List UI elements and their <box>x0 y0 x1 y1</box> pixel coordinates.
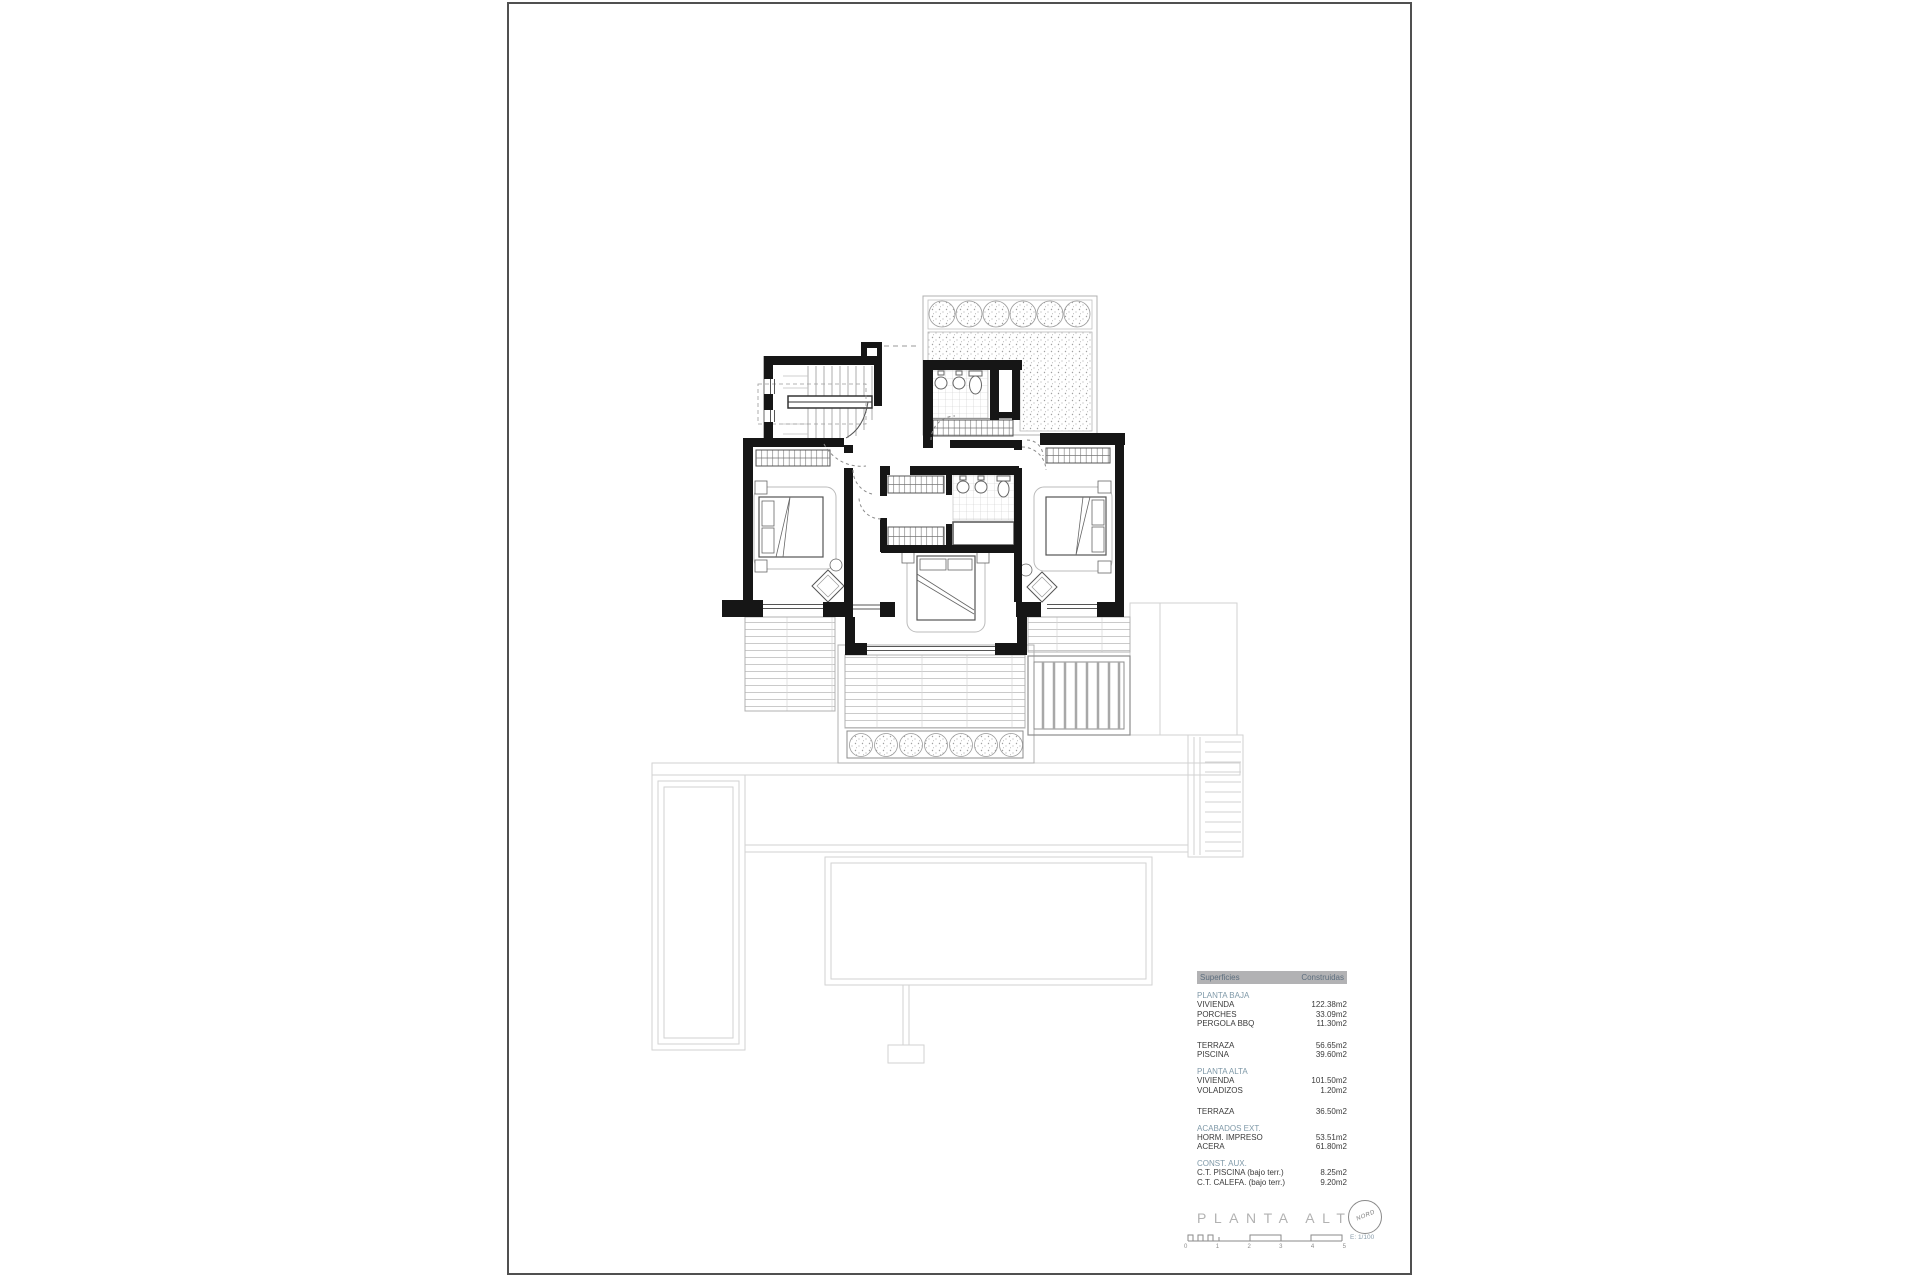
sink-tap <box>956 371 962 375</box>
sink <box>935 377 947 389</box>
table-group: PLANTA ALTAVIVIENDA101.50m2VOLADIZOS1.20… <box>1197 1067 1347 1095</box>
table-group: PLANTA BAJAVIVIENDA122.38m2PORCHES33.09m… <box>1197 991 1347 1029</box>
area-label: TERRAZA <box>1197 1107 1234 1117</box>
pillow <box>762 528 774 553</box>
areas-table-header: Superficies Construidas <box>1197 971 1347 984</box>
drawing-canvas: Superficies Construidas PLANTA BAJAVIVIE… <box>0 0 1920 1280</box>
table-group: TERRAZA56.65m2PISCINA39.60m2 <box>1197 1041 1347 1060</box>
area-label: VIVIENDA <box>1197 1076 1234 1086</box>
terraces <box>745 617 1130 763</box>
nightstand <box>1098 481 1111 493</box>
nightstand <box>755 481 767 494</box>
toilet <box>998 481 1009 497</box>
pillow <box>762 501 774 526</box>
table-group: ACABADOS EXT.HORM. IMPRESO53.51m2ACERA61… <box>1197 1124 1347 1152</box>
armchair <box>1027 572 1057 602</box>
sink <box>975 481 987 493</box>
north-arrow: NORD <box>1348 1200 1382 1234</box>
area-value: 53.51m2 <box>1316 1133 1347 1143</box>
header-col-superficies: Superficies <box>1200 973 1240 982</box>
scale-tick-label: 3 <box>1279 1244 1282 1250</box>
side-table <box>830 559 842 571</box>
area-label: C.T. PISCINA (bajo terr.) <box>1197 1168 1284 1178</box>
nightstand <box>977 552 989 563</box>
sink-tap <box>960 476 966 480</box>
table-group: TERRAZA36.50m2 <box>1197 1107 1347 1117</box>
group-heading: ACABADOS EXT. <box>1197 1124 1347 1133</box>
pillow <box>1092 527 1104 552</box>
exterior-stair <box>1188 735 1243 857</box>
area-value: 101.50m2 <box>1311 1076 1347 1086</box>
area-value: 56.65m2 <box>1316 1041 1347 1051</box>
area-value: 39.60m2 <box>1316 1050 1347 1060</box>
group-heading: PLANTA BAJA <box>1197 991 1347 1000</box>
table-group: CONST. AUX.C.T. PISCINA (bajo terr.)8.25… <box>1197 1159 1347 1187</box>
scale-ticks: 012345 <box>1184 1244 1346 1250</box>
scale-label: E: 1/100 <box>1350 1234 1374 1241</box>
header-col-construidas: Construidas <box>1301 973 1344 982</box>
scale-bar <box>1188 1235 1342 1241</box>
area-row: HORM. IMPRESO53.51m2 <box>1197 1133 1347 1143</box>
area-row: TERRAZA56.65m2 <box>1197 1041 1347 1051</box>
bedroom-right <box>1020 448 1112 602</box>
area-value: 33.09m2 <box>1316 1010 1347 1020</box>
area-value: 8.25m2 <box>1320 1168 1347 1178</box>
area-label: C.T. CALEFA. (bajo terr.) <box>1197 1178 1285 1188</box>
area-value: 36.50m2 <box>1316 1107 1347 1117</box>
sink <box>953 377 965 389</box>
areas-table-body: PLANTA BAJAVIVIENDA122.38m2PORCHES33.09m… <box>1197 991 1347 1187</box>
area-row: VIVIENDA101.50m2 <box>1197 1076 1347 1086</box>
nightstand <box>755 560 767 572</box>
area-value: 122.38m2 <box>1311 1000 1347 1010</box>
area-row: C.T. CALEFA. (bajo terr.)9.20m2 <box>1197 1178 1347 1188</box>
shower-tray <box>953 522 1014 545</box>
toilet-tank <box>969 371 982 376</box>
toilet-tank <box>997 476 1010 481</box>
area-value: 1.20m2 <box>1320 1086 1347 1096</box>
area-row: VIVIENDA122.38m2 <box>1197 1000 1347 1010</box>
area-label: HORM. IMPRESO <box>1197 1133 1263 1143</box>
area-label: VIVIENDA <box>1197 1000 1234 1010</box>
area-label: PISCINA <box>1197 1050 1229 1060</box>
pillow <box>948 559 972 570</box>
group-heading: CONST. AUX. <box>1197 1159 1347 1168</box>
area-row: C.T. PISCINA (bajo terr.)8.25m2 <box>1197 1168 1347 1178</box>
sink-tap <box>938 371 944 375</box>
planter-trees <box>847 731 1023 758</box>
north-label: NORD <box>1356 1210 1376 1223</box>
area-value: 61.80m2 <box>1316 1142 1347 1152</box>
scale-tick-label: 2 <box>1247 1244 1250 1250</box>
staircase <box>758 366 872 438</box>
area-label: PERGOLA BBQ <box>1197 1019 1254 1029</box>
area-label: PORCHES <box>1197 1010 1237 1020</box>
sink-tap <box>978 476 984 480</box>
area-label: TERRAZA <box>1197 1041 1234 1051</box>
page-title: PLANTA ALTA <box>1197 1210 1368 1226</box>
tree-row <box>929 301 1090 327</box>
sink <box>957 481 969 493</box>
terrace-main-deck <box>845 655 1025 728</box>
area-label: VOLADIZOS <box>1197 1086 1243 1096</box>
area-value: 11.30m2 <box>1316 1019 1347 1029</box>
toilet <box>970 376 982 394</box>
area-row: PISCINA39.60m2 <box>1197 1050 1347 1060</box>
scale-tick-label: 4 <box>1311 1244 1314 1250</box>
terrace-right-deck <box>1028 617 1130 652</box>
area-row: ACERA61.80m2 <box>1197 1142 1347 1152</box>
scale-tick-label: 1 <box>1216 1244 1219 1250</box>
pergola-slats <box>1028 656 1130 735</box>
pillow <box>1092 500 1104 525</box>
area-row: TERRAZA36.50m2 <box>1197 1107 1347 1117</box>
bathroom-top <box>931 370 1013 436</box>
floor-plan-drawing <box>0 0 1920 1280</box>
nightstand <box>1098 561 1111 573</box>
group-heading: PLANTA ALTA <box>1197 1067 1347 1076</box>
areas-table: Superficies Construidas PLANTA BAJAVIVIE… <box>1197 971 1347 1187</box>
bedroom-left <box>754 450 844 602</box>
area-row: PERGOLA BBQ11.30m2 <box>1197 1019 1347 1029</box>
area-value: 9.20m2 <box>1320 1178 1347 1188</box>
scale-tick-label: 0 <box>1184 1244 1187 1250</box>
pillow <box>920 559 946 570</box>
terrace-left-deck <box>745 617 835 711</box>
area-row: PORCHES33.09m2 <box>1197 1010 1347 1020</box>
nightstand <box>902 552 914 563</box>
area-row: VOLADIZOS1.20m2 <box>1197 1086 1347 1096</box>
area-label: ACERA <box>1197 1142 1225 1152</box>
scale-tick-label: 5 <box>1343 1244 1346 1250</box>
bedroom-master <box>902 549 989 632</box>
